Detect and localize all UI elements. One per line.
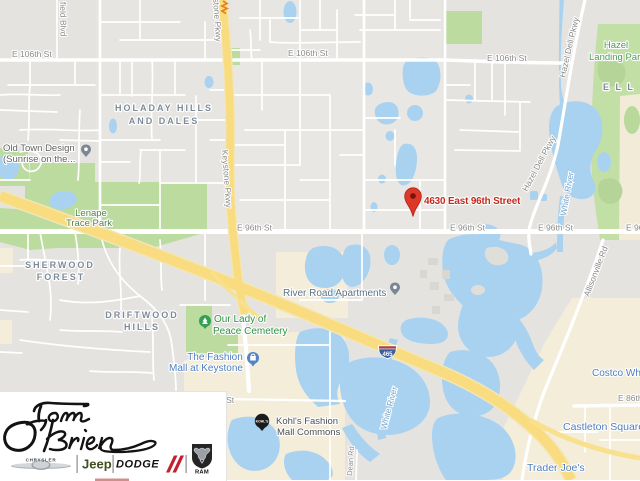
svg-text:DODGE: DODGE	[116, 459, 159, 471]
svg-text:RAM: RAM	[195, 470, 209, 476]
svg-text:Mall Commons: Mall Commons	[277, 427, 341, 438]
svg-text:E 96th St: E 96th St	[237, 223, 273, 233]
svg-text:Castleton Square: Castleton Square	[563, 421, 640, 433]
svg-text:E 106th St: E 106th St	[288, 48, 328, 58]
svg-text:River Road Apartments: River Road Apartments	[283, 288, 386, 299]
svg-text:Mall at Keystone: Mall at Keystone	[169, 363, 243, 374]
svg-text:Trader Joe's: Trader Joe's	[527, 462, 585, 474]
svg-text:4630 East 96th Street: 4630 East 96th Street	[424, 196, 521, 207]
svg-text:Jeep: Jeep	[82, 457, 112, 472]
svg-text:E 106th St: E 106th St	[12, 49, 52, 59]
svg-text:KOHL'S: KOHL'S	[256, 420, 269, 424]
svg-text:Trace Park: Trace Park	[66, 218, 112, 229]
svg-text:Hazel: Hazel	[604, 40, 628, 51]
svg-text:The Fashion: The Fashion	[187, 352, 243, 363]
svg-text:E 96th St: E 96th St	[450, 223, 486, 233]
svg-text:DRIFTWOOD: DRIFTWOOD	[105, 310, 179, 320]
svg-text:E 96th St: E 96th St	[538, 223, 574, 233]
svg-text:field Blvd: field Blvd	[58, 2, 69, 37]
svg-text:Costco Wholesale: Costco Wholesale	[592, 368, 640, 379]
svg-text:Our Lady of: Our Lady of	[214, 314, 266, 325]
svg-text:Peace Cemetery: Peace Cemetery	[213, 326, 287, 337]
svg-text:HILLS: HILLS	[124, 322, 160, 332]
svg-text:Kohl's Fashion: Kohl's Fashion	[276, 416, 338, 427]
svg-text:465: 465	[382, 352, 393, 358]
svg-text:E 106th St: E 106th St	[487, 53, 527, 63]
svg-text:CHRYSLER: CHRYSLER	[26, 458, 57, 463]
svg-text:E 86th St: E 86th St	[618, 393, 640, 403]
svg-text:Landing Park: Landing Park	[589, 52, 640, 63]
svg-text:E 96th St: E 96th St	[626, 223, 640, 233]
svg-text:(Sunrise on the...: (Sunrise on the...	[3, 154, 75, 165]
svg-text:FOREST: FOREST	[37, 272, 86, 282]
svg-text:SHERWOOD: SHERWOOD	[25, 260, 95, 270]
svg-text:E L L: E L L	[603, 82, 635, 92]
svg-text:Old Town Design: Old Town Design	[3, 143, 75, 154]
svg-text:HOLADAY HILLS: HOLADAY HILLS	[115, 103, 213, 113]
svg-text:AND DALES: AND DALES	[129, 116, 200, 126]
